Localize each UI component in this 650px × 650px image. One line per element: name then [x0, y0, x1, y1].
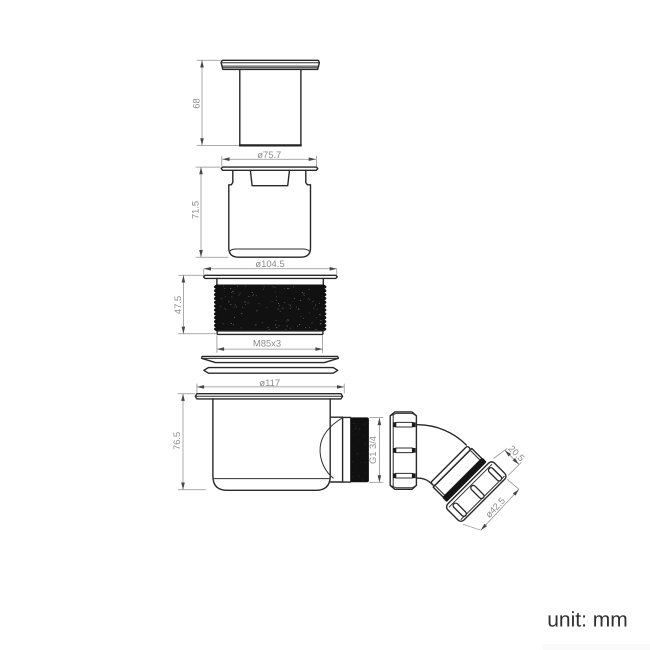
svg-text:G1 3/4: G1 3/4	[368, 436, 378, 464]
svg-text:ø75.7: ø75.7	[257, 149, 281, 160]
svg-text:47.5: 47.5	[172, 296, 183, 314]
svg-text:71.5: 71.5	[189, 201, 200, 219]
svg-text:76.5: 76.5	[171, 432, 182, 450]
svg-text:ø117: ø117	[259, 377, 280, 388]
svg-text:unit: mm: unit: mm	[547, 609, 628, 632]
svg-text:M85x3: M85x3	[253, 337, 281, 348]
svg-text:68: 68	[190, 98, 201, 108]
svg-text:ø104.5: ø104.5	[255, 258, 284, 269]
